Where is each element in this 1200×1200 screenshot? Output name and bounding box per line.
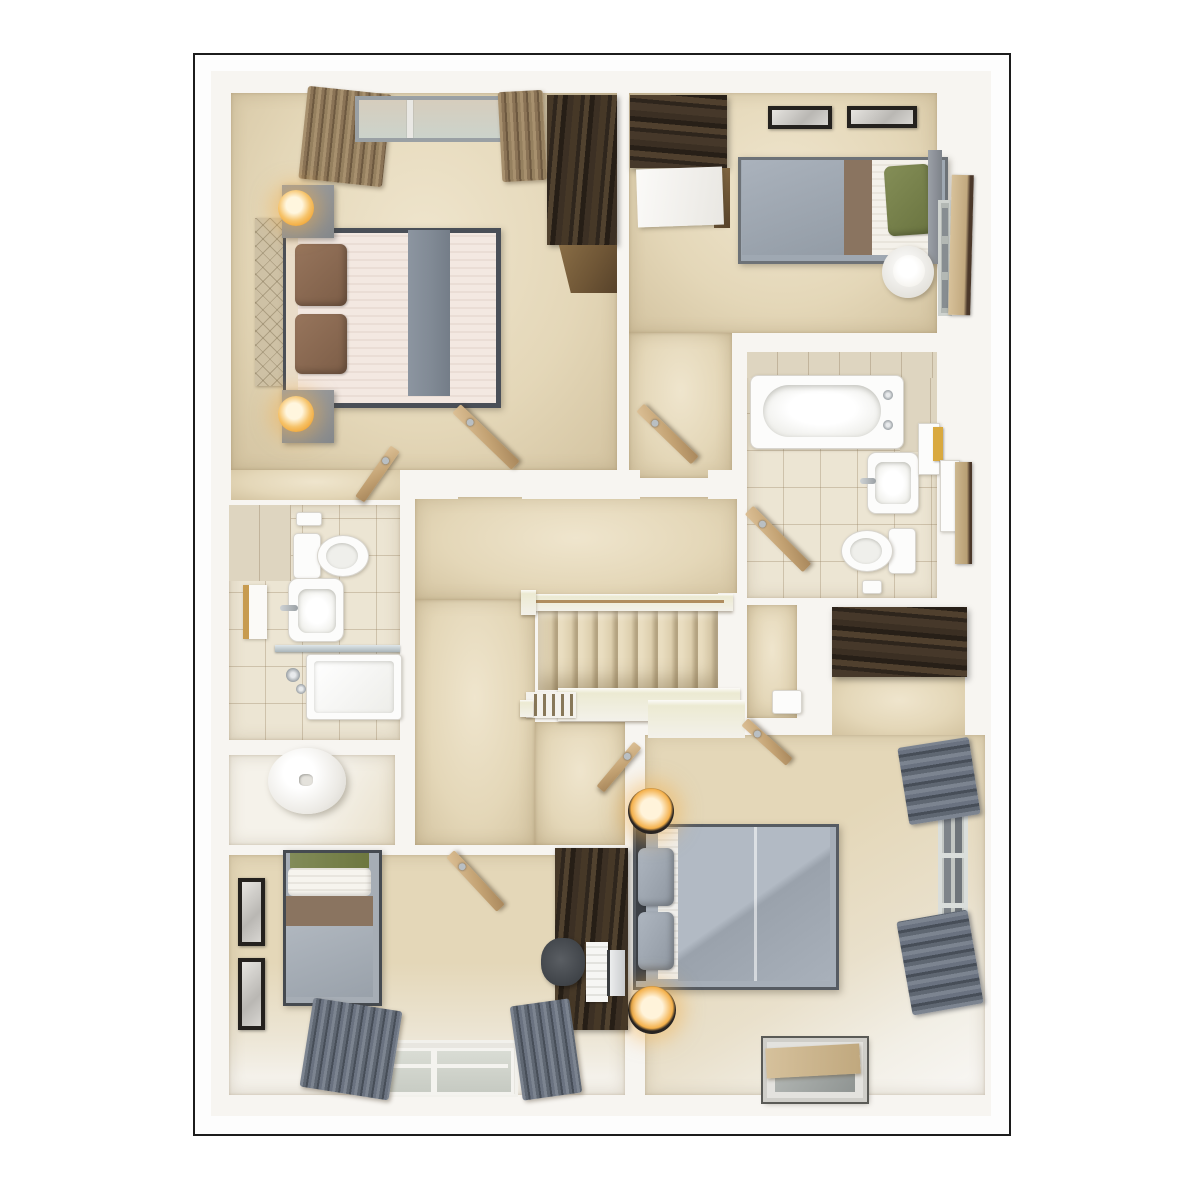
shower-screen	[275, 645, 400, 652]
wall-frame-2	[847, 106, 917, 128]
tap-icon	[883, 420, 893, 430]
curtain-right-icon	[498, 90, 548, 182]
pillow-brown-1	[295, 244, 347, 306]
wardrobe-open-door	[636, 167, 724, 228]
draped-cloth	[765, 1044, 860, 1079]
stair-handrail	[528, 594, 733, 611]
landing-floor-top	[415, 497, 737, 600]
toilet-roll-icon	[296, 512, 322, 526]
throw-gray	[408, 230, 450, 396]
ensuite-basin	[288, 578, 344, 642]
lamp-bedroom3-top-icon	[628, 788, 674, 834]
tall-cabinet	[955, 462, 972, 564]
wall-frame-4	[238, 958, 265, 1030]
top-step	[772, 690, 802, 714]
floor-plan-render	[0, 0, 1200, 1200]
pillow-gray-2	[638, 912, 674, 970]
stair-bottom-wall-2	[648, 700, 745, 738]
lamp-master-top-icon	[278, 190, 314, 226]
wall-segment	[708, 470, 737, 499]
stair-steps	[538, 610, 718, 690]
landing-floor-left	[415, 600, 535, 845]
wall-alcove-right	[797, 600, 832, 677]
wardrobe-bedroom2	[630, 95, 727, 168]
lamp-bedroom3-bottom-icon	[628, 986, 676, 1034]
wall-frame-1	[768, 106, 832, 129]
door-panel-east	[948, 175, 974, 316]
curtain-bedroom3-top-icon	[897, 737, 980, 825]
newel-post	[520, 700, 533, 717]
window-mullion	[407, 100, 413, 138]
balustrade	[526, 692, 576, 718]
shower-valve-icon	[296, 684, 306, 694]
toilet-roll-icon	[862, 580, 882, 594]
pillow-gray-1	[638, 848, 674, 906]
headboard-master	[255, 218, 285, 386]
bathtub	[750, 375, 904, 449]
tap-icon	[883, 390, 893, 400]
towel-yellow	[933, 427, 943, 461]
curtain-bedroom4-left-icon	[300, 998, 403, 1101]
lamp-master-bottom-icon	[278, 396, 314, 432]
bed-bedroom4	[283, 850, 382, 1006]
duvet-gray	[742, 160, 844, 255]
wall-frame-3	[238, 878, 265, 946]
tile-wall-corner	[229, 505, 291, 581]
shower-valve-icon	[286, 668, 300, 682]
wall-segment	[522, 470, 640, 499]
toilet-bowl	[841, 530, 893, 572]
towel-rail	[243, 585, 267, 639]
faucet-icon	[280, 605, 298, 611]
shower-tray	[306, 654, 402, 720]
monitor	[607, 950, 625, 996]
wall-bedroom3-right-top	[965, 598, 987, 735]
wardrobe-master	[547, 95, 617, 245]
newel-post	[521, 590, 536, 615]
office-chair	[541, 938, 585, 986]
wall-segment	[400, 470, 458, 499]
faucet-icon	[860, 478, 876, 484]
ensuite-toilet-bowl	[317, 535, 369, 577]
blanket-band-brown	[844, 160, 872, 255]
papers	[586, 942, 608, 1002]
bedroom3-floor-upper	[832, 677, 967, 735]
window-bedroom4	[378, 1040, 518, 1097]
basin	[867, 452, 919, 514]
window-master	[355, 96, 513, 142]
table-lamp-icon	[893, 255, 925, 287]
pillow-green-icon	[884, 163, 935, 236]
pillow-brown-2	[295, 314, 347, 374]
console-table	[832, 607, 967, 677]
water-cylinder	[268, 748, 346, 814]
